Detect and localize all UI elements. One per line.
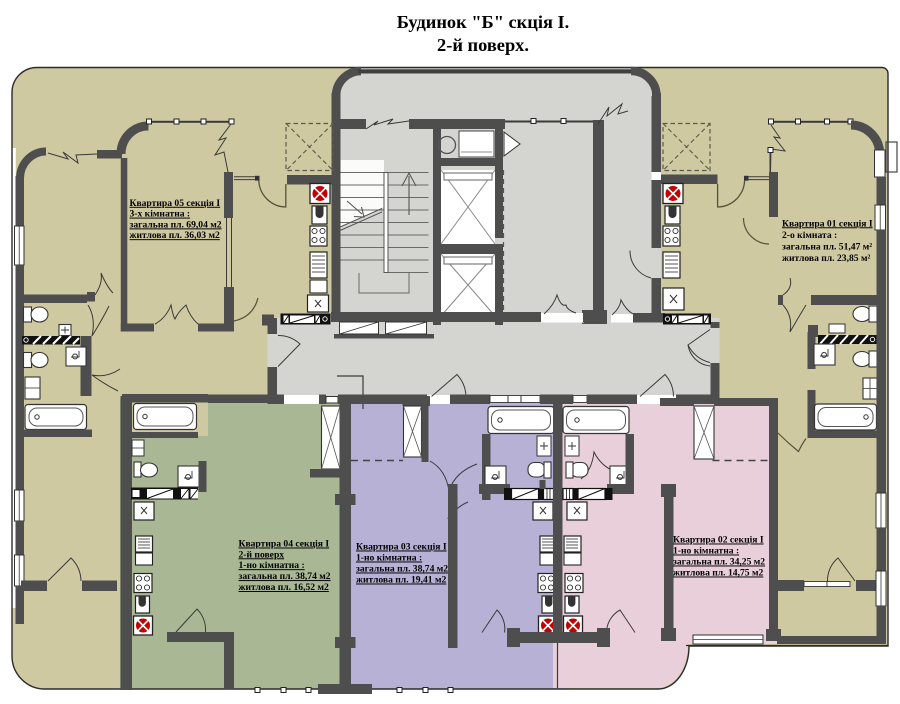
svg-text:Квартира 04 секція І: Квартира 04 секція І	[239, 539, 330, 550]
svg-text:Квартира 02 секція І: Квартира 02 секція І	[673, 535, 764, 546]
svg-text:житлова пл. 19,41 м2: житлова пл. 19,41 м2	[356, 575, 447, 586]
svg-text:Квартира 01 секція І: Квартира 01 секція І	[782, 218, 873, 229]
svg-text:загальна пл. 38,74 м2: загальна пл. 38,74 м2	[356, 564, 448, 575]
svg-text:2-й поверх.: 2-й поверх.	[437, 35, 529, 55]
svg-text:житлова пл. 16,52 м2: житлова пл. 16,52 м2	[239, 582, 330, 593]
svg-text:загальна пл. 51,47 м²: загальна пл. 51,47 м²	[782, 241, 872, 252]
svg-text:житлова пл. 36,03 м2: житлова пл. 36,03 м2	[130, 230, 221, 241]
svg-text:житлова пл. 14,75 м2: житлова пл. 14,75 м2	[673, 568, 764, 579]
svg-text:Будинок "Б" скція І.: Будинок "Б" скція І.	[397, 12, 570, 32]
svg-text:3-х кімнатна :: 3-х кімнатна :	[130, 209, 191, 220]
svg-text:1-но кімнатна :: 1-но кімнатна :	[673, 546, 739, 557]
svg-text:2-о кімната :: 2-о кімната :	[782, 230, 837, 241]
svg-text:1-но кімнатна :: 1-но кімнатна :	[239, 560, 305, 571]
svg-text:Квартира 05 секція І: Квартира 05 секція І	[130, 198, 221, 209]
svg-text:загальна пл. 34,25 м2: загальна пл. 34,25 м2	[673, 557, 765, 568]
svg-text:Квартира 03 секція І: Квартира 03 секція І	[356, 542, 447, 553]
svg-text:загальна пл. 69,04 м2: загальна пл. 69,04 м2	[130, 219, 222, 230]
svg-text:1-но кімнатна :: 1-но кімнатна :	[356, 553, 422, 564]
svg-text:житлова пл. 23,85 м²: житлова пл. 23,85 м²	[782, 253, 871, 264]
svg-text:2-й поверх: 2-й поверх	[239, 549, 285, 560]
svg-text:загальна пл. 38,74 м2: загальна пл. 38,74 м2	[239, 571, 331, 582]
